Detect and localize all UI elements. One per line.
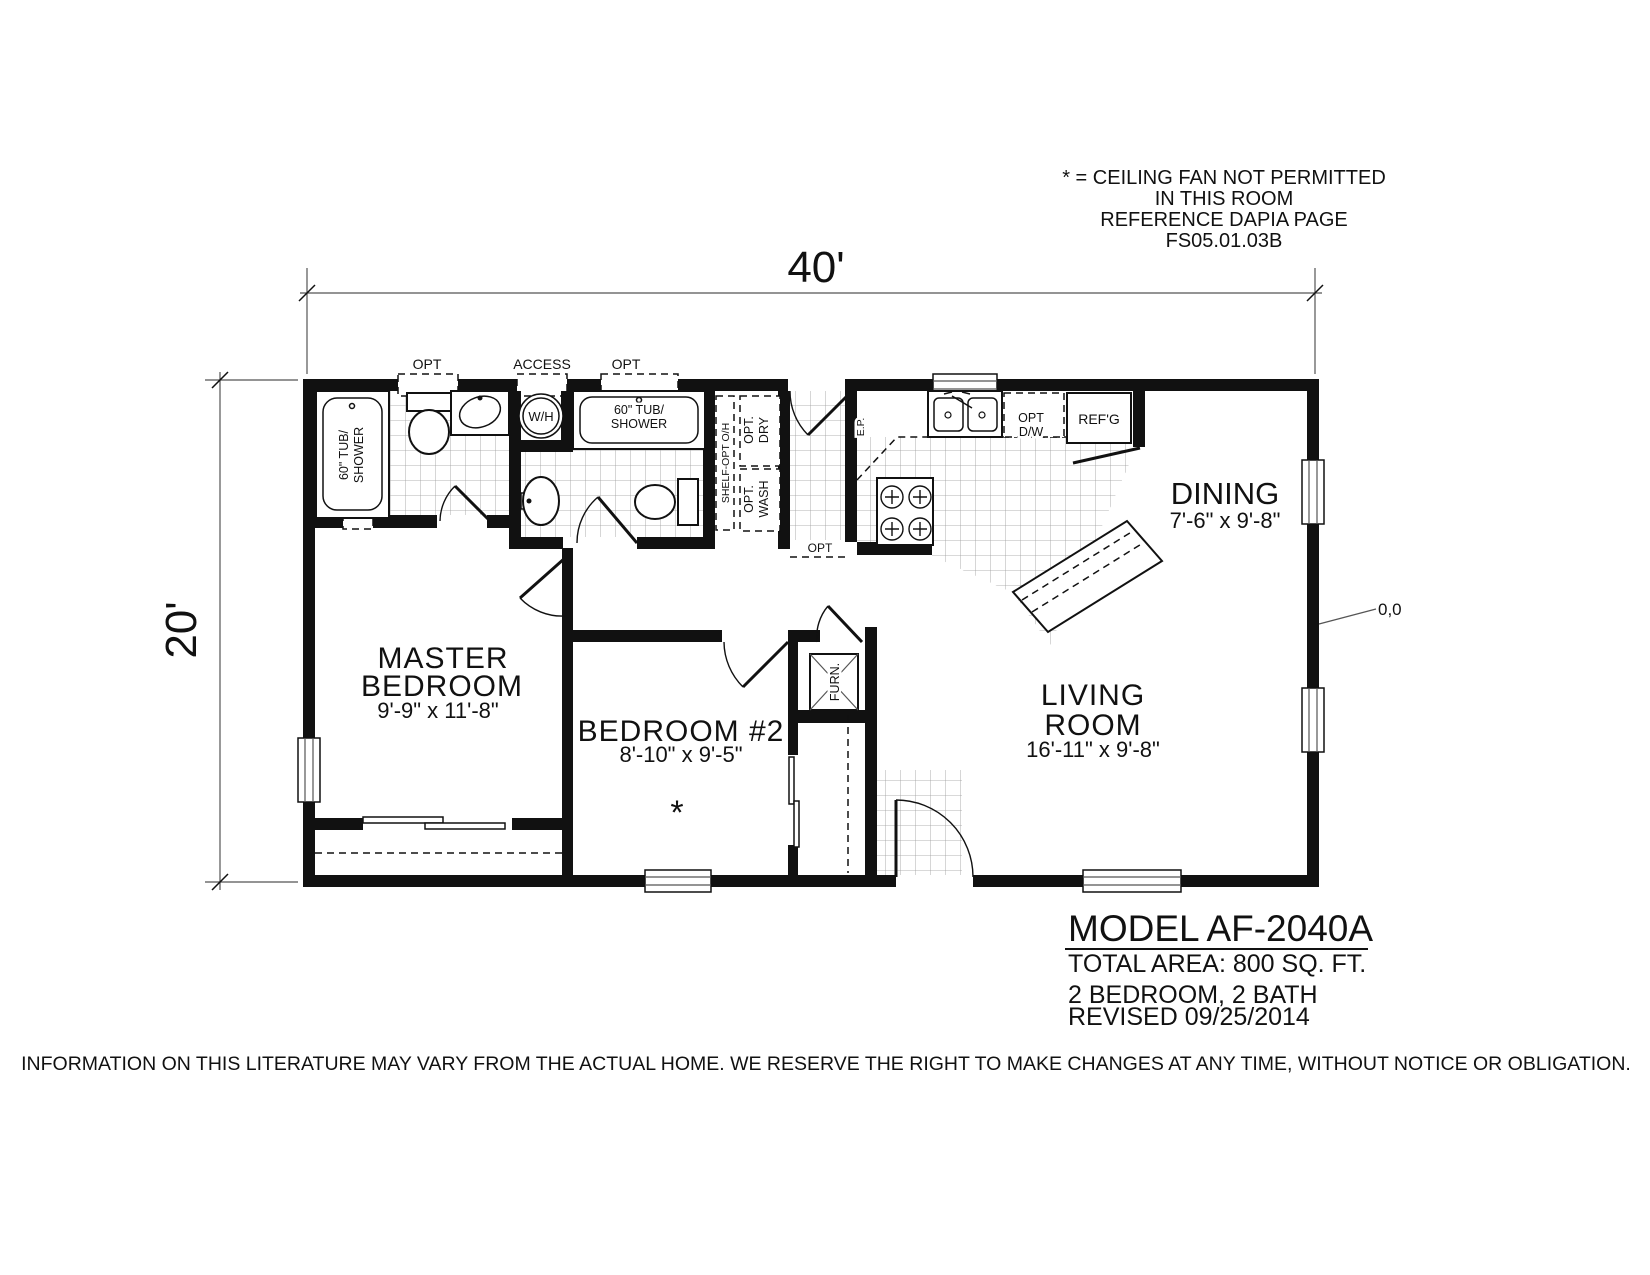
refrigerator-label: REF'G xyxy=(1078,411,1120,427)
ceiling-fan-annotation: * = CEILING FAN NOT PERMITTED IN THIS RO… xyxy=(1062,167,1386,252)
washer-label-2: WASH xyxy=(757,480,771,517)
floor-plan-page: 40' 20' 0,0 xyxy=(0,0,1650,1275)
master-toilet xyxy=(407,393,451,454)
opt-window2-label: OPT xyxy=(612,356,641,372)
kitchen-sink xyxy=(928,391,1002,437)
model-title: MODEL AF-2040A xyxy=(1068,908,1373,949)
total-area: TOTAL AREA: 800 SQ. FT. xyxy=(1068,950,1366,978)
title-block: MODEL AF-2040A TOTAL AREA: 800 SQ. FT. 2… xyxy=(1065,908,1373,1031)
shelf-label: SHELF-OPT O/H xyxy=(720,423,732,503)
electrical-panel-label: E.P. xyxy=(855,418,867,437)
master-bedroom-door xyxy=(520,558,565,616)
furnace-door xyxy=(817,606,862,642)
dryer-label-2: DRY xyxy=(757,416,771,443)
dimension-lines: 40' 20' 0,0 xyxy=(157,243,1402,890)
dryer-label-1: OPT. xyxy=(742,416,756,444)
access-label: ACCESS xyxy=(513,356,571,372)
water-heater-label: W/H xyxy=(528,409,553,424)
bath2-tub-label-2: SHOWER xyxy=(611,417,667,431)
dishwasher-label-1: OPT xyxy=(1018,411,1044,425)
living-bottom-window xyxy=(1083,870,1181,892)
furnace-label: FURN. xyxy=(828,663,842,701)
access-panel xyxy=(517,374,567,396)
bath2-tub-label-1: 60" TUB/ xyxy=(614,403,665,417)
origin-label: 0,0 xyxy=(1378,600,1402,619)
room-size-dining: 7'-6" x 9'-8" xyxy=(1170,508,1281,533)
bedroom2-door xyxy=(724,642,788,687)
dishwasher-label-2: D/W xyxy=(1019,425,1044,439)
disclaimer-text: INFORMATION ON THIS LITERATURE MAY VARY … xyxy=(21,1053,1631,1075)
master-tub-label-2: SHOWER xyxy=(352,427,366,483)
room-size-bedroom2: 8'-10" x 9'-5" xyxy=(619,742,742,767)
master-sink xyxy=(451,391,509,435)
ceiling-fan-asterisk: * xyxy=(670,794,683,832)
stove xyxy=(877,478,933,545)
room-size-living: 16'-11" x 9'-8" xyxy=(1026,737,1160,762)
room-label-living-1: LIVING xyxy=(1041,679,1145,712)
dim-height-label: 20' xyxy=(157,601,206,658)
floor-plan-drawing: 40' 20' 0,0 xyxy=(0,0,1650,1275)
dim-width-label: 40' xyxy=(787,243,844,292)
dining-window xyxy=(1302,460,1324,524)
annotation-line-4: FS05.01.03B xyxy=(1166,230,1283,252)
opt-window1-label: OPT xyxy=(413,356,442,372)
bedroom2-window xyxy=(645,870,711,892)
master-window xyxy=(298,738,320,802)
room-label-dining: DINING xyxy=(1171,476,1280,511)
annotation-line-2: IN THIS ROOM xyxy=(1155,188,1294,210)
opt-hall-door-label: OPT xyxy=(808,541,833,555)
front-door-opening xyxy=(788,379,852,391)
washer-label-1: OPT. xyxy=(742,485,756,513)
rear-door-opening xyxy=(896,875,973,887)
master-tub-label-1: 60" TUB/ xyxy=(337,429,351,480)
revised-date: REVISED 09/25/2014 xyxy=(1068,1003,1310,1031)
living-window xyxy=(1302,688,1324,752)
annotation-line-1: * = CEILING FAN NOT PERMITTED xyxy=(1062,167,1386,189)
room-size-master: 9'-9" x 11'-8" xyxy=(377,698,498,723)
annotation-line-3: REFERENCE DAPIA PAGE xyxy=(1100,209,1347,231)
